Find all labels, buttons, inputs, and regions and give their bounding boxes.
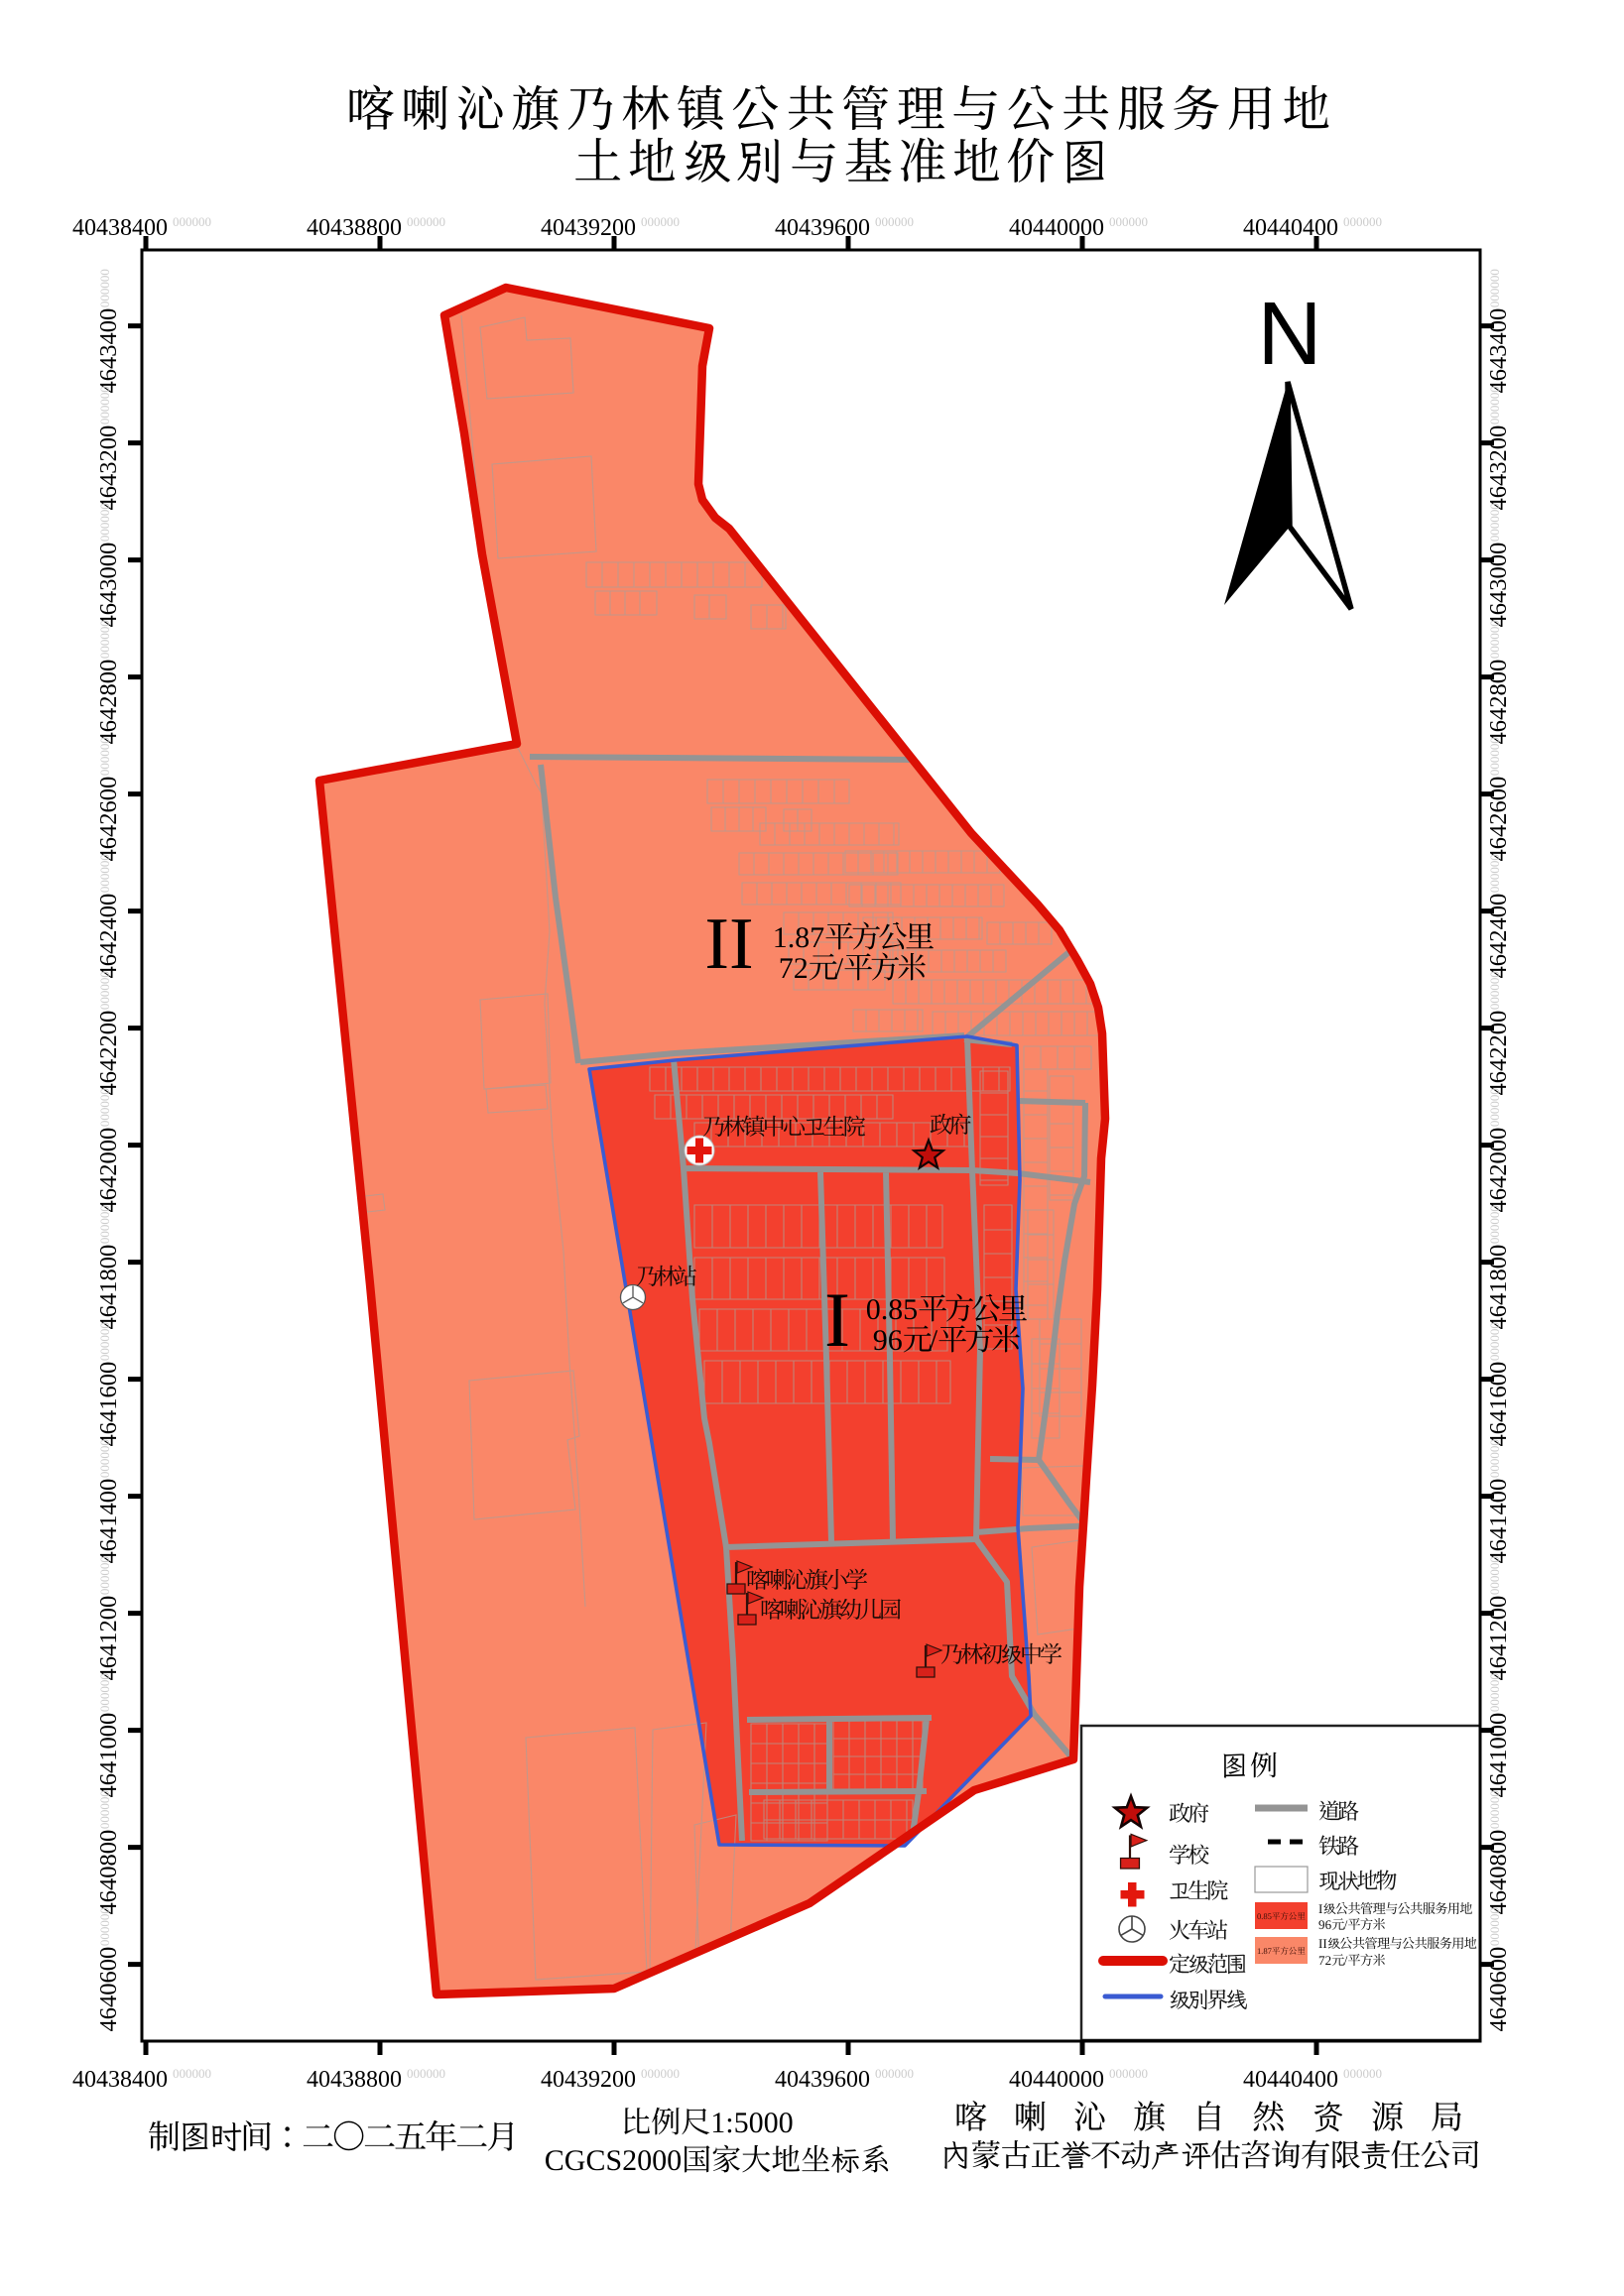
svg-text:000000: 000000 [97,1322,112,1361]
svg-text:40438400: 40438400 [72,215,168,241]
svg-text:000000: 000000 [97,1439,112,1478]
svg-text:40439200: 40439200 [541,2067,636,2093]
svg-text:4643200: 4643200 [95,425,122,511]
svg-text:4641800: 4641800 [95,1245,122,1330]
svg-text:N: N [1258,285,1322,384]
svg-text:4643000: 4643000 [1485,543,1512,628]
svg-text:40440000: 40440000 [1009,215,1104,241]
svg-text:40440000: 40440000 [1009,2067,1104,2093]
svg-text:000000: 000000 [1487,620,1502,659]
svg-text:4642000: 4642000 [1485,1128,1512,1213]
svg-text:4640800: 4640800 [1485,1830,1512,1915]
svg-text:4640600: 4640600 [1485,1947,1512,2032]
svg-text:4641400: 4641400 [95,1479,122,1564]
svg-text:000000: 000000 [1487,1790,1502,1829]
svg-text:000000: 000000 [97,620,112,659]
svg-text:000000: 000000 [1487,737,1502,776]
svg-text:000000: 000000 [97,1088,112,1127]
svg-text:4642400: 4642400 [95,894,122,979]
svg-text:000000: 000000 [1487,971,1502,1010]
svg-text:4642000: 4642000 [95,1128,122,1213]
svg-text:4643400: 4643400 [1485,308,1512,394]
svg-text:000000: 000000 [97,1673,112,1712]
svg-text:000000: 000000 [97,1205,112,1244]
svg-text:000000: 000000 [97,1907,112,1946]
svg-text:000000: 000000 [1343,2066,1382,2081]
svg-text:000000: 000000 [1487,1322,1502,1361]
svg-text:40439200: 40439200 [541,215,636,241]
svg-text:4642800: 4642800 [1485,660,1512,745]
svg-text:000000: 000000 [173,214,211,229]
svg-text:I: I [824,1276,850,1363]
svg-text:000000: 000000 [1487,1556,1502,1595]
svg-text:II: II [704,904,753,985]
svg-text:4642200: 4642200 [95,1011,122,1096]
svg-text:000000: 000000 [641,2066,680,2081]
svg-text:4640600: 4640600 [95,1947,122,2032]
svg-text:000000: 000000 [97,503,112,542]
svg-text:000000: 000000 [407,2066,445,2081]
svg-text:000000: 000000 [1487,1205,1502,1244]
svg-text:000000: 000000 [173,2066,211,2081]
svg-text:40440400: 40440400 [1243,2067,1338,2093]
svg-text:000000: 000000 [1487,269,1502,307]
svg-text:4641000: 4641000 [1485,1713,1512,1798]
svg-text:000000: 000000 [97,386,112,424]
svg-text:000000: 000000 [97,854,112,893]
svg-text:4641600: 4641600 [95,1362,122,1447]
svg-text:000000: 000000 [1487,1907,1502,1946]
svg-text:4641000: 4641000 [95,1713,122,1798]
svg-text:000000: 000000 [1487,503,1502,542]
svg-text:4641600: 4641600 [1485,1362,1512,1447]
svg-text:4642800: 4642800 [95,660,122,745]
svg-text:40439600: 40439600 [775,2067,870,2093]
svg-text:4642600: 4642600 [1485,777,1512,862]
svg-text:4642200: 4642200 [1485,1011,1512,1096]
svg-text:4641400: 4641400 [1485,1479,1512,1564]
svg-text:000000: 000000 [1487,1673,1502,1712]
svg-text:000000: 000000 [97,737,112,776]
svg-text:4640800: 4640800 [95,1830,122,1915]
svg-text:4641200: 4641200 [95,1596,122,1681]
svg-text:000000: 000000 [1487,854,1502,893]
svg-text:4642600: 4642600 [95,777,122,862]
svg-text:000000: 000000 [875,2066,914,2081]
svg-text:000000: 000000 [1487,1088,1502,1127]
svg-text:000000: 000000 [97,1790,112,1829]
svg-text:4641800: 4641800 [1485,1245,1512,1330]
svg-text:4643200: 4643200 [1485,425,1512,511]
svg-text:000000: 000000 [97,971,112,1010]
svg-text:000000: 000000 [1343,214,1382,229]
svg-text:4641200: 4641200 [1485,1596,1512,1681]
svg-text:000000: 000000 [97,1556,112,1595]
svg-text:4643400: 4643400 [95,308,122,394]
svg-text:000000: 000000 [1109,214,1148,229]
svg-text:40438800: 40438800 [307,215,402,241]
svg-text:4642400: 4642400 [1485,894,1512,979]
svg-text:000000: 000000 [97,269,112,307]
svg-text:000000: 000000 [1487,1439,1502,1478]
svg-text:000000: 000000 [641,214,680,229]
svg-text:000000: 000000 [407,214,445,229]
svg-text:40438400: 40438400 [72,2067,168,2093]
svg-text:000000: 000000 [1487,386,1502,424]
svg-text:40438800: 40438800 [307,2067,402,2093]
svg-text:000000: 000000 [875,214,914,229]
svg-text:4643000: 4643000 [95,543,122,628]
svg-text:40440400: 40440400 [1243,215,1338,241]
svg-text:000000: 000000 [1109,2066,1148,2081]
svg-text:40439600: 40439600 [775,215,870,241]
